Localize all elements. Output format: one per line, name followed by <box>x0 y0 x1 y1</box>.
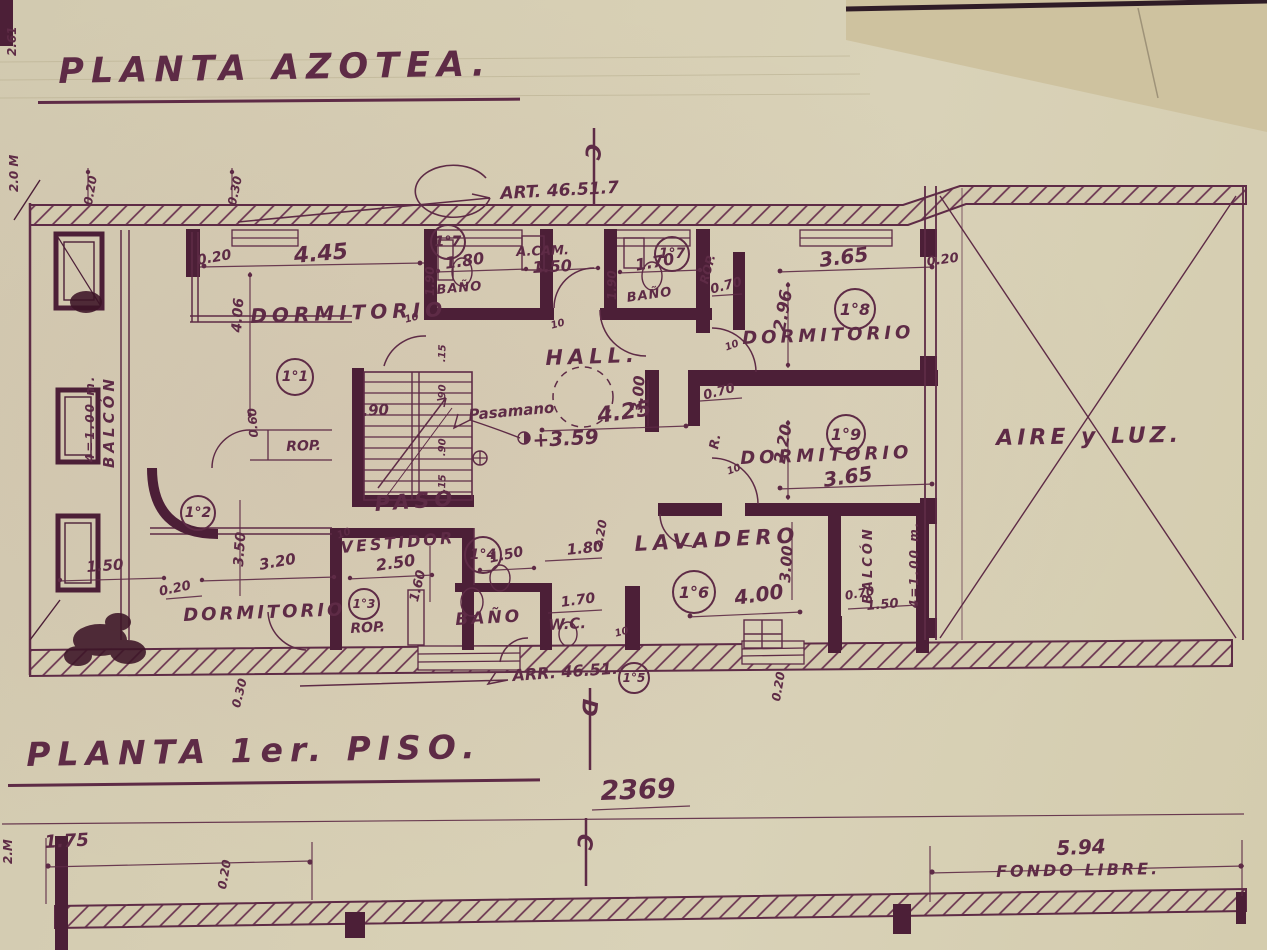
paper-fold-corner <box>846 0 1267 132</box>
dim-1-50-left: 1.50 <box>86 557 124 575</box>
dim-1-50-acam: 1.50 <box>532 258 572 276</box>
room-label-bano-top-left: BAÑO <box>436 280 483 297</box>
dim-090-b: .90 <box>438 438 449 456</box>
room-number-1-3: 1°3 <box>348 588 380 620</box>
dim-015-b: .15 <box>438 474 449 492</box>
closet-label-rop-1: ROP. <box>286 439 321 454</box>
dim-3-50: 3.50 <box>232 532 248 567</box>
dim-015-a: .15 <box>438 344 449 362</box>
plan-title-azotea: PLANTA AZOTEA. <box>58 47 492 90</box>
dim-2369-total: 2369 <box>600 775 676 805</box>
room-label-balcon-left: BALCÓN <box>102 375 117 468</box>
room-number-text: 1°6 <box>679 583 709 602</box>
dim-4-06: 4.06 <box>230 298 246 333</box>
dim-3-65-d9: 3.65 <box>822 463 874 490</box>
room-number-text: 1°7 <box>435 234 461 250</box>
staircase <box>364 372 487 500</box>
room-number-text: 1°8 <box>840 300 870 319</box>
balcon-left-area-note: 4=1.00 m. <box>84 375 96 462</box>
balcon-right-area-note: 4=1.00 m. <box>908 521 920 608</box>
dim-3-00-lav: 3.00 <box>778 545 796 583</box>
room-number-1-1: 1°1 <box>276 358 314 396</box>
level-mark <box>518 432 530 444</box>
note-level-359: +3.59 <box>532 427 599 450</box>
dim-090-a: .90 <box>438 384 449 402</box>
top-exterior-wall <box>30 186 1246 225</box>
closet-label-rop-3: ROP. <box>350 620 385 636</box>
dim-0-60: 0.60 <box>246 408 260 438</box>
room-number-text: 1°5 <box>623 671 646 685</box>
margin-dim-2-0m: 2.0 M <box>8 155 20 192</box>
room-number-text: 1°1 <box>282 369 308 385</box>
ink-smudges <box>64 291 146 666</box>
dim-3-65-d8: 3.65 <box>818 244 869 270</box>
note-fondo-libre: FONDO LIBRE. <box>996 861 1160 880</box>
room-number-text: 1°2 <box>185 505 211 521</box>
dim-1-50-balcon: 1.50 <box>866 597 899 613</box>
dim-090-stair: .90 <box>362 403 389 419</box>
dim-1-90-right: 1.90 <box>606 270 618 300</box>
room-number-1-2: 1°2 <box>180 495 216 531</box>
room-number-1-6: 1°6 <box>672 570 716 614</box>
room-number-1-8: 1°8 <box>834 288 876 330</box>
room-label-hall: HALL. <box>545 345 639 369</box>
margin-dim-2m: 2.M <box>2 839 14 864</box>
dim-5-94: 5.94 <box>1056 836 1106 858</box>
room-number-text: 1°9 <box>831 425 861 444</box>
section-marker-d: D <box>578 698 600 717</box>
floorplan-drawing <box>0 0 1267 950</box>
room-number-text: 1°3 <box>353 597 376 611</box>
blueprint-sheet: PLANTA AZOTEA. PLANTA 1er. PISO. C D C D… <box>0 0 1267 950</box>
first-floor-top-wall <box>55 889 1246 928</box>
room-number-1-9: 1°9 <box>826 414 866 454</box>
dim-4-00-lav: 4.00 <box>733 581 785 608</box>
closet-label-r-vertical: R. <box>708 433 723 450</box>
dim-1-75: 1.75 <box>44 832 89 852</box>
dim-4-45: 4.45 <box>293 241 349 268</box>
room-number-1-5: 1°5 <box>618 662 650 694</box>
margin-dim-2-61: 2.61 <box>6 26 18 56</box>
plan-title-1er-piso: PLANTA 1er. PISO. <box>26 730 482 771</box>
section-lines <box>586 128 594 886</box>
room-label-aire-y-luz: AIRE y LUZ. <box>996 425 1182 450</box>
patio-cross <box>940 196 1236 638</box>
room-label-wc: W.C. <box>548 616 586 633</box>
dim-1-90-left: 1.90 <box>424 266 436 296</box>
room-label-bano-main: BAÑO <box>455 609 523 629</box>
